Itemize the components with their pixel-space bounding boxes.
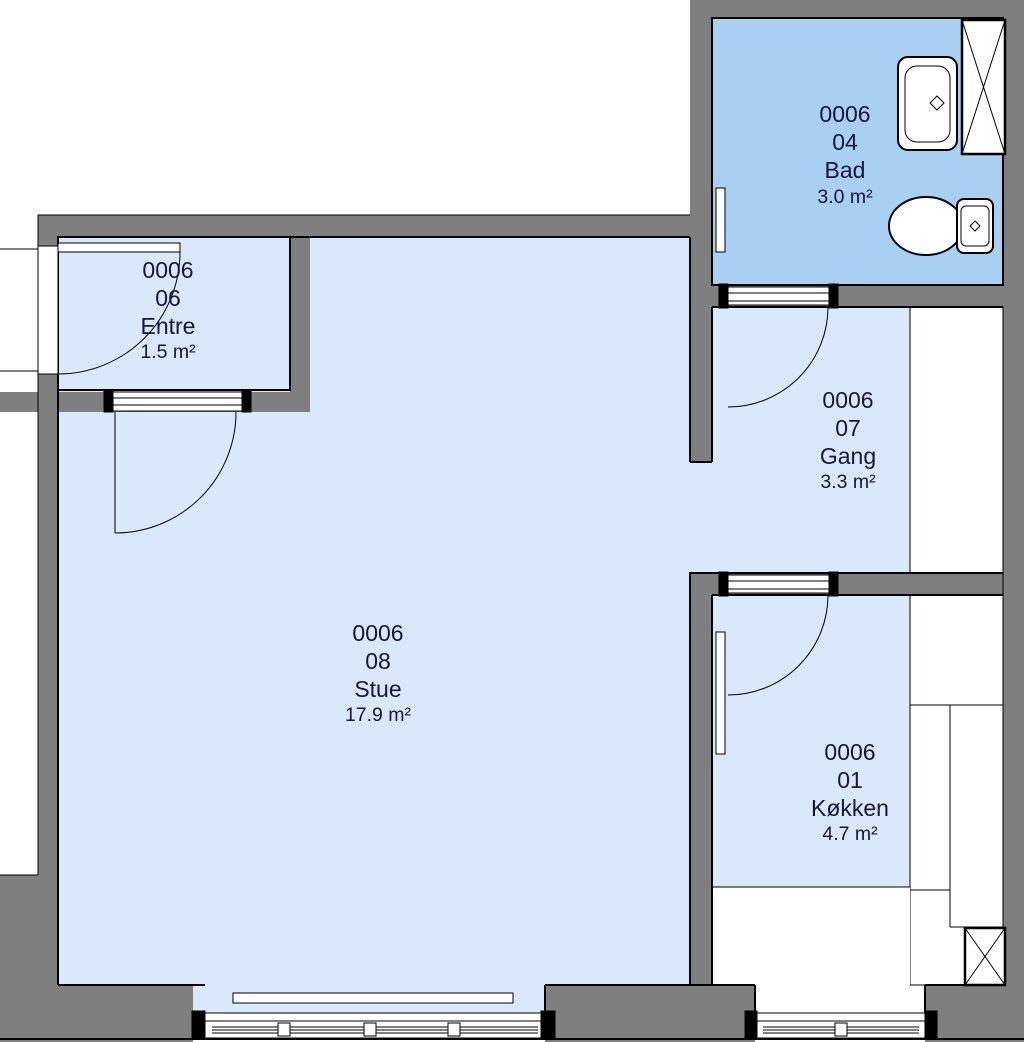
room-area: 4.7 m²: [822, 823, 878, 845]
toilet: [889, 197, 993, 255]
wall: [545, 985, 755, 1042]
room-area: 17.9 m²: [345, 704, 412, 726]
door-frame: [728, 287, 829, 305]
window-jamb-cap: [925, 1011, 937, 1038]
radiator: [233, 993, 513, 1003]
room-number: 08: [365, 648, 391, 674]
sink: [898, 57, 957, 150]
window-mullion: [364, 1023, 376, 1036]
room-name: Gang: [820, 443, 876, 469]
room-number: 06: [155, 285, 181, 311]
wall: [690, 572, 712, 985]
wall: [0, 985, 193, 1042]
wall: [1003, 0, 1024, 1042]
wall: [38, 215, 712, 237]
room-name: Køkken: [811, 795, 889, 821]
room-number: 04: [832, 129, 858, 155]
room-unit: 0006: [822, 387, 873, 413]
wall: [690, 0, 1024, 18]
toilet-bowl-icon: [889, 197, 963, 255]
door-jamb-cap: [719, 572, 728, 596]
window-jamb-cap: [541, 1011, 555, 1038]
wall: [290, 237, 310, 412]
door-jamb-cap: [104, 390, 113, 412]
room-gang-floor: [712, 307, 910, 573]
door-frame: [38, 246, 58, 374]
window-jamb-cap: [192, 1011, 205, 1038]
room-area: 3.3 m²: [820, 471, 876, 493]
wall: [925, 985, 1024, 1042]
door-frame: [728, 575, 829, 593]
window-jamb-cap: [745, 1011, 757, 1038]
wall: [690, 0, 712, 462]
room-name: Entre: [141, 313, 196, 339]
vent-shaft: [965, 928, 1005, 985]
room-unit: 0006: [142, 257, 193, 283]
radiator: [716, 188, 725, 252]
room-unit: 0006: [352, 620, 403, 646]
radiator: [716, 632, 725, 754]
room-unit: 0006: [819, 101, 870, 127]
room-number: 07: [835, 415, 861, 441]
floor-plan-drawing: 0006 04 Bad 3.0 m² 0006 06 Entre 1.5 m² …: [0, 0, 1024, 1042]
room-koekken-floor: [712, 595, 910, 887]
door-jamb-cap: [242, 390, 251, 412]
room-area: 3.0 m²: [817, 186, 873, 208]
window-mullion: [835, 1023, 847, 1036]
door-jamb-cap: [829, 284, 838, 308]
room-area: 1.5 m²: [140, 341, 196, 363]
room-unit: 0006: [824, 739, 875, 765]
passage-stue-gang: [690, 462, 712, 573]
door-frame: [113, 392, 242, 411]
shower-shaft: [962, 20, 1005, 154]
stue-window: [192, 1011, 555, 1038]
room-name: Stue: [354, 676, 401, 702]
door-jamb-cap: [719, 284, 728, 308]
door-leaf: [58, 243, 180, 252]
koekken-window: [745, 1011, 937, 1038]
room-name: Bad: [825, 157, 866, 183]
floor-plan: 0006 04 Bad 3.0 m² 0006 06 Entre 1.5 m² …: [0, 0, 1024, 1042]
kitchen-counter: [712, 887, 910, 985]
window-mullion: [278, 1023, 290, 1036]
door-jamb-cap: [829, 572, 838, 596]
window-mullion: [448, 1023, 460, 1036]
closet-strip: [910, 307, 1003, 985]
room-number: 01: [837, 767, 863, 793]
